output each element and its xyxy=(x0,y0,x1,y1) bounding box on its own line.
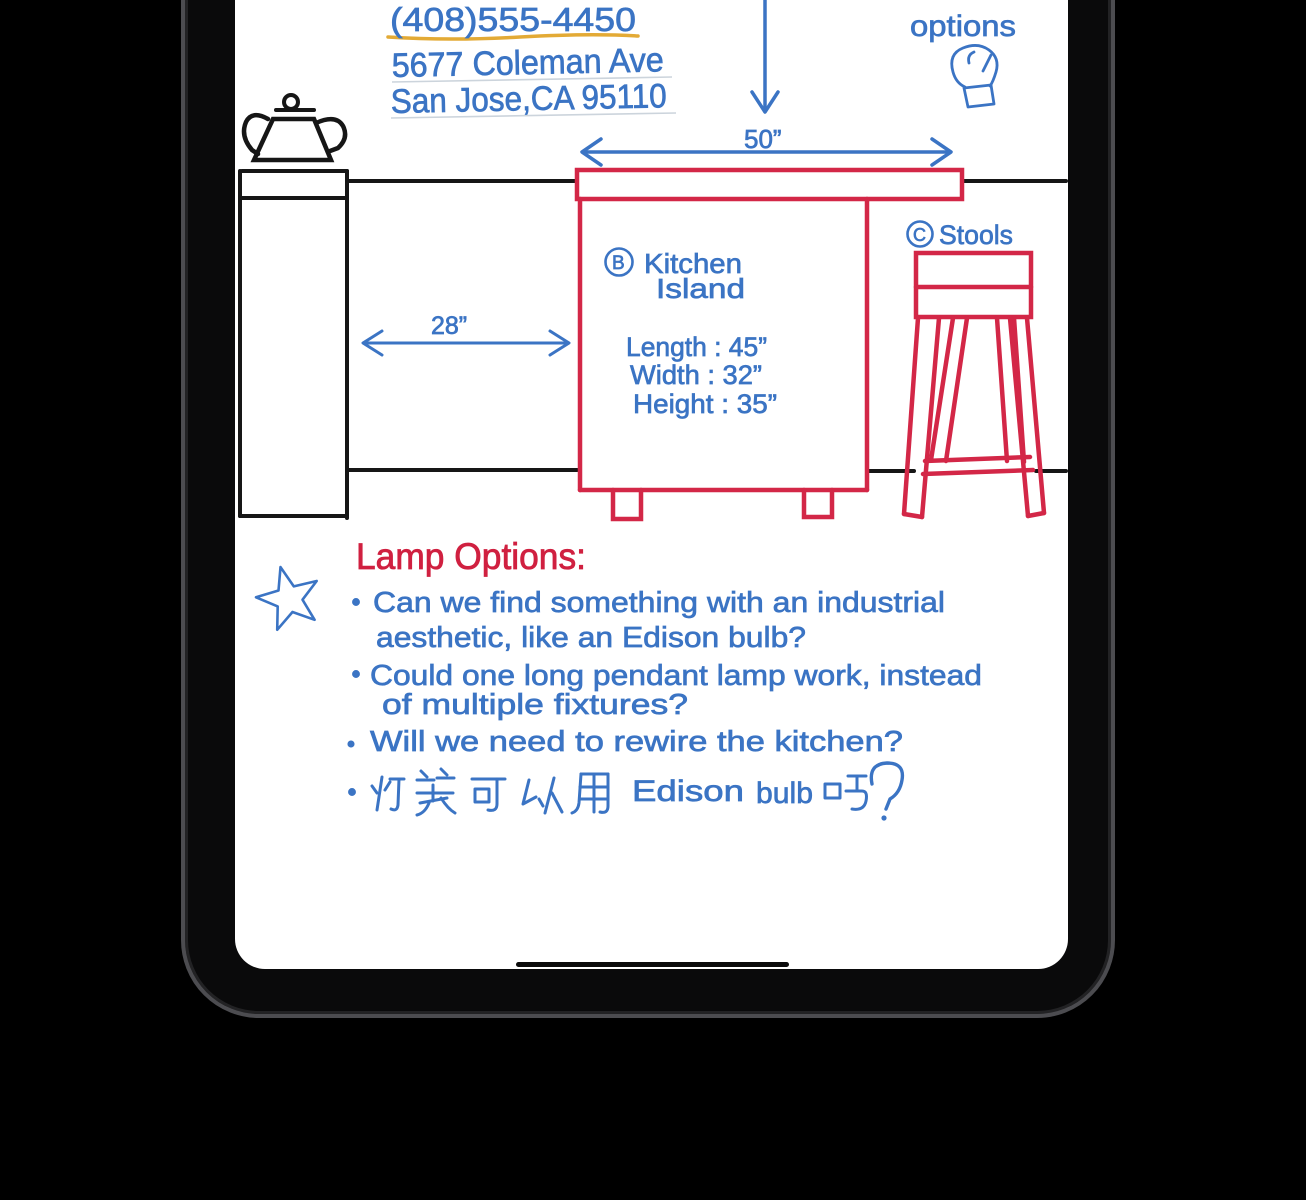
svg-text:Could one long pendant lamp wo: Could one long pendant lamp work, instea… xyxy=(370,660,982,692)
svg-text:Will we need to rewire the kit: Will we need to rewire the kitchen? xyxy=(370,726,903,758)
svg-text:(408)555-4450: (408)555-4450 xyxy=(390,1,636,38)
svg-text:Island: Island xyxy=(656,273,745,304)
svg-text:28”: 28” xyxy=(431,312,467,340)
svg-text:Can we find something with an: Can we find something with an industrial xyxy=(373,587,945,619)
svg-text:Width : 32”: Width : 32” xyxy=(630,360,762,390)
svg-text:Lamp Options:: Lamp Options: xyxy=(356,536,586,577)
svg-text:C: C xyxy=(913,225,926,245)
svg-text:B: B xyxy=(612,253,625,274)
svg-text:aesthetic, like an Edison bulb: aesthetic, like an Edison bulb? xyxy=(376,622,806,654)
svg-text:Stools: Stools xyxy=(939,220,1013,250)
svg-text:Edison: Edison xyxy=(632,775,744,808)
svg-text:bulb: bulb xyxy=(756,777,813,810)
svg-text:Length : 45”: Length : 45” xyxy=(626,332,767,362)
svg-text:options: options xyxy=(910,10,1016,43)
svg-text:50”: 50” xyxy=(744,124,782,154)
svg-text:San Jose,CA 95110: San Jose,CA 95110 xyxy=(390,77,667,121)
svg-text:Height : 35”: Height : 35” xyxy=(633,389,777,419)
svg-text:of multiple fixtures?: of multiple fixtures? xyxy=(382,689,688,721)
